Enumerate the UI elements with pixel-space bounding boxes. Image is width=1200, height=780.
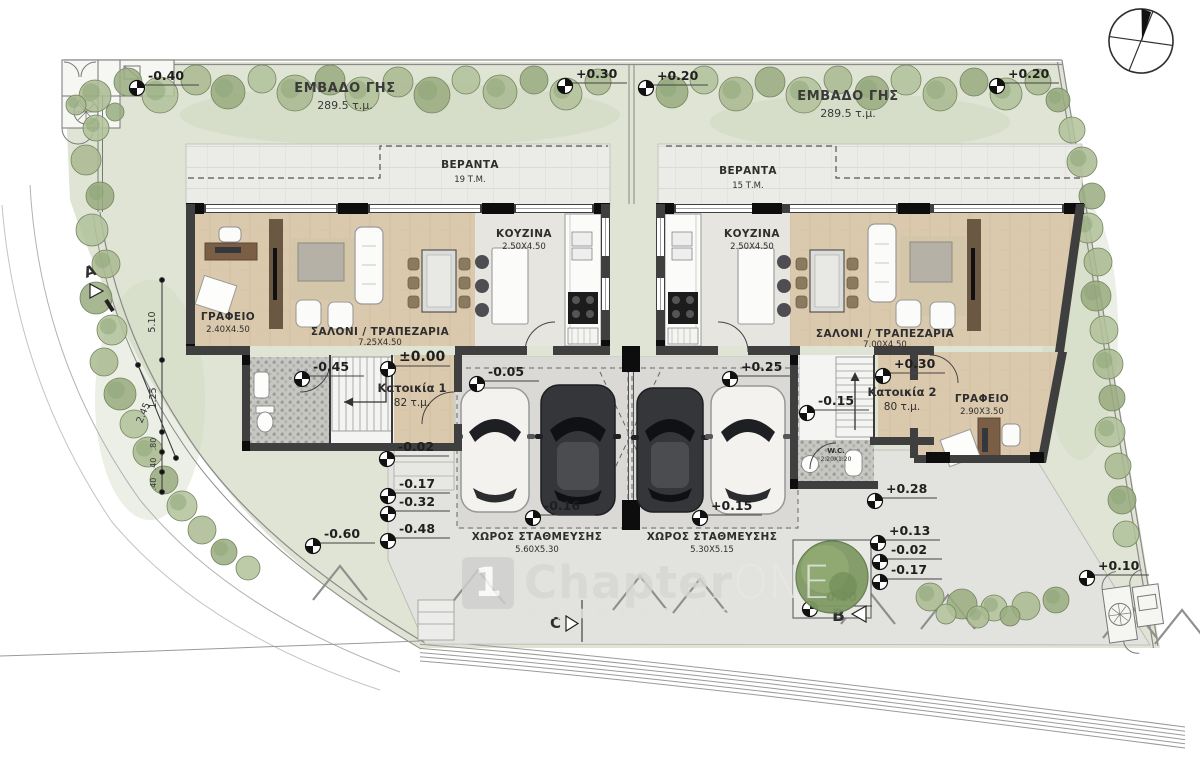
elevation-value: -0.16 (544, 498, 580, 513)
car-dark-2 (631, 388, 709, 512)
living2-dims: 7.00Χ4.50 (863, 340, 907, 350)
elevation-value: +0.13 (889, 523, 930, 538)
elevation-value: +0.15 (711, 498, 752, 513)
elevation-value: +0.20 (657, 68, 699, 83)
kitchen2-label: ΚΟΥΖΙΝΑ (724, 228, 780, 240)
kitchen2-dims: 2.50Χ4.50 (730, 242, 774, 252)
veranda1-area: 19 Τ.Μ. (454, 175, 485, 185)
elevation-value: -0.32 (399, 494, 435, 509)
house2-name: Κατοικία 2 (867, 385, 936, 399)
parking1-dims: 5.60Χ5.30 (515, 545, 559, 555)
parking2-dims: 5.30Χ5.15 (690, 545, 734, 555)
planter-tree (796, 541, 868, 613)
kitchen1-dims: 2.50Χ4.50 (502, 242, 546, 252)
veranda1-label: ΒΕΡΑΝΤΑ (441, 159, 499, 171)
elevation-value: -0.05 (488, 364, 524, 379)
car-white-1 (455, 388, 535, 512)
car-white-2 (705, 386, 791, 514)
house2-area: 80 τ.μ. (884, 401, 920, 413)
floor-plan-drawing: ΕΜΒΑΔΟ ΓΗΣ 289.5 τ.μ. ΕΜΒΑΔΟ ΓΗΣ 289.5 τ… (0, 0, 1200, 780)
office1-dims: 2.40Χ4.50 (206, 325, 250, 335)
elevation-value: +0.30 (576, 66, 618, 81)
elevation-value: -0.15 (818, 393, 854, 408)
elevation-value: -0.48 (399, 521, 435, 536)
elevation-value: ±0.00 (399, 349, 446, 365)
elevation-value: +0.28 (886, 481, 927, 496)
elevation-value: -0.17 (399, 476, 435, 491)
veranda2-label: ΒΕΡΑΝΤΑ (719, 165, 777, 177)
office1-label: ΓΡΑΦΕΙΟ (201, 311, 255, 323)
car-dark-1 (535, 385, 621, 515)
elevation-value: -0.17 (891, 562, 927, 577)
parking1-label: ΧΩΡΟΣ ΣΤΑΘΜΕΥΣΗΣ (472, 531, 603, 543)
living1-dims: 7.25Χ4.50 (358, 338, 402, 348)
elevation-value: +0.30 (894, 356, 936, 371)
dim-80: .80 (149, 438, 158, 451)
living1-label: ΣΑΛΟΝΙ / ΤΡΑΠΕΖΑΡΙΑ (311, 326, 450, 338)
wc-dims: 2.20Χ1.20 (821, 456, 852, 463)
office2-label: ΓΡΑΦΕΙΟ (955, 393, 1009, 405)
house1-area: 82 τ.μ. (394, 397, 430, 409)
svg-text:C: C (550, 614, 561, 632)
dim-5-10: 5.10 (147, 311, 158, 332)
elevation-value: -0.40 (148, 68, 184, 83)
wc-label: W.C. (827, 447, 845, 455)
house1-name: Κατοικία 1 (377, 381, 446, 395)
elevation-value: +0.10 (1098, 558, 1140, 573)
plot-left-area: 289.5 τ.μ. (317, 99, 373, 112)
plot-left-label: ΕΜΒΑΔΟ ΓΗΣ (294, 81, 395, 96)
plot-right-label: ΕΜΒΑΔΟ ΓΗΣ (797, 89, 898, 104)
elevation-value: +0.25 (741, 359, 782, 374)
office2-dims: 2.90Χ3.50 (960, 407, 1004, 417)
north-arrow-icon (1105, 5, 1177, 77)
elevation-value: -0.60 (324, 526, 360, 541)
parking2-label: ΧΩΡΟΣ ΣΤΑΘΜΕΥΣΗΣ (647, 531, 778, 543)
veranda2-area: 15 Τ.Μ. (732, 181, 763, 191)
dim-40a: .40 (149, 458, 158, 471)
living2-label: ΣΑΛΟΝΙ / ΤΡΑΠΕΖΑΡΙΑ (816, 328, 955, 340)
elevation-value: -0.02 (891, 542, 927, 557)
plot-right-area: 289.5 τ.μ. (820, 107, 876, 120)
elevation-value: -0.45 (313, 359, 349, 374)
road-kerb-band (420, 640, 1185, 748)
elevation-value: +0.20 (1008, 66, 1050, 81)
veranda-left (186, 144, 610, 206)
kitchen1-label: ΚΟΥΖΙΝΑ (496, 228, 552, 240)
elevation-value: -0.02 (398, 439, 434, 454)
dim-40b: .40 (149, 478, 158, 491)
site-plan-canvas: ΕΜΒΑΔΟ ΓΗΣ 289.5 τ.μ. ΕΜΒΑΔΟ ΓΗΣ 289.5 τ… (0, 0, 1200, 780)
